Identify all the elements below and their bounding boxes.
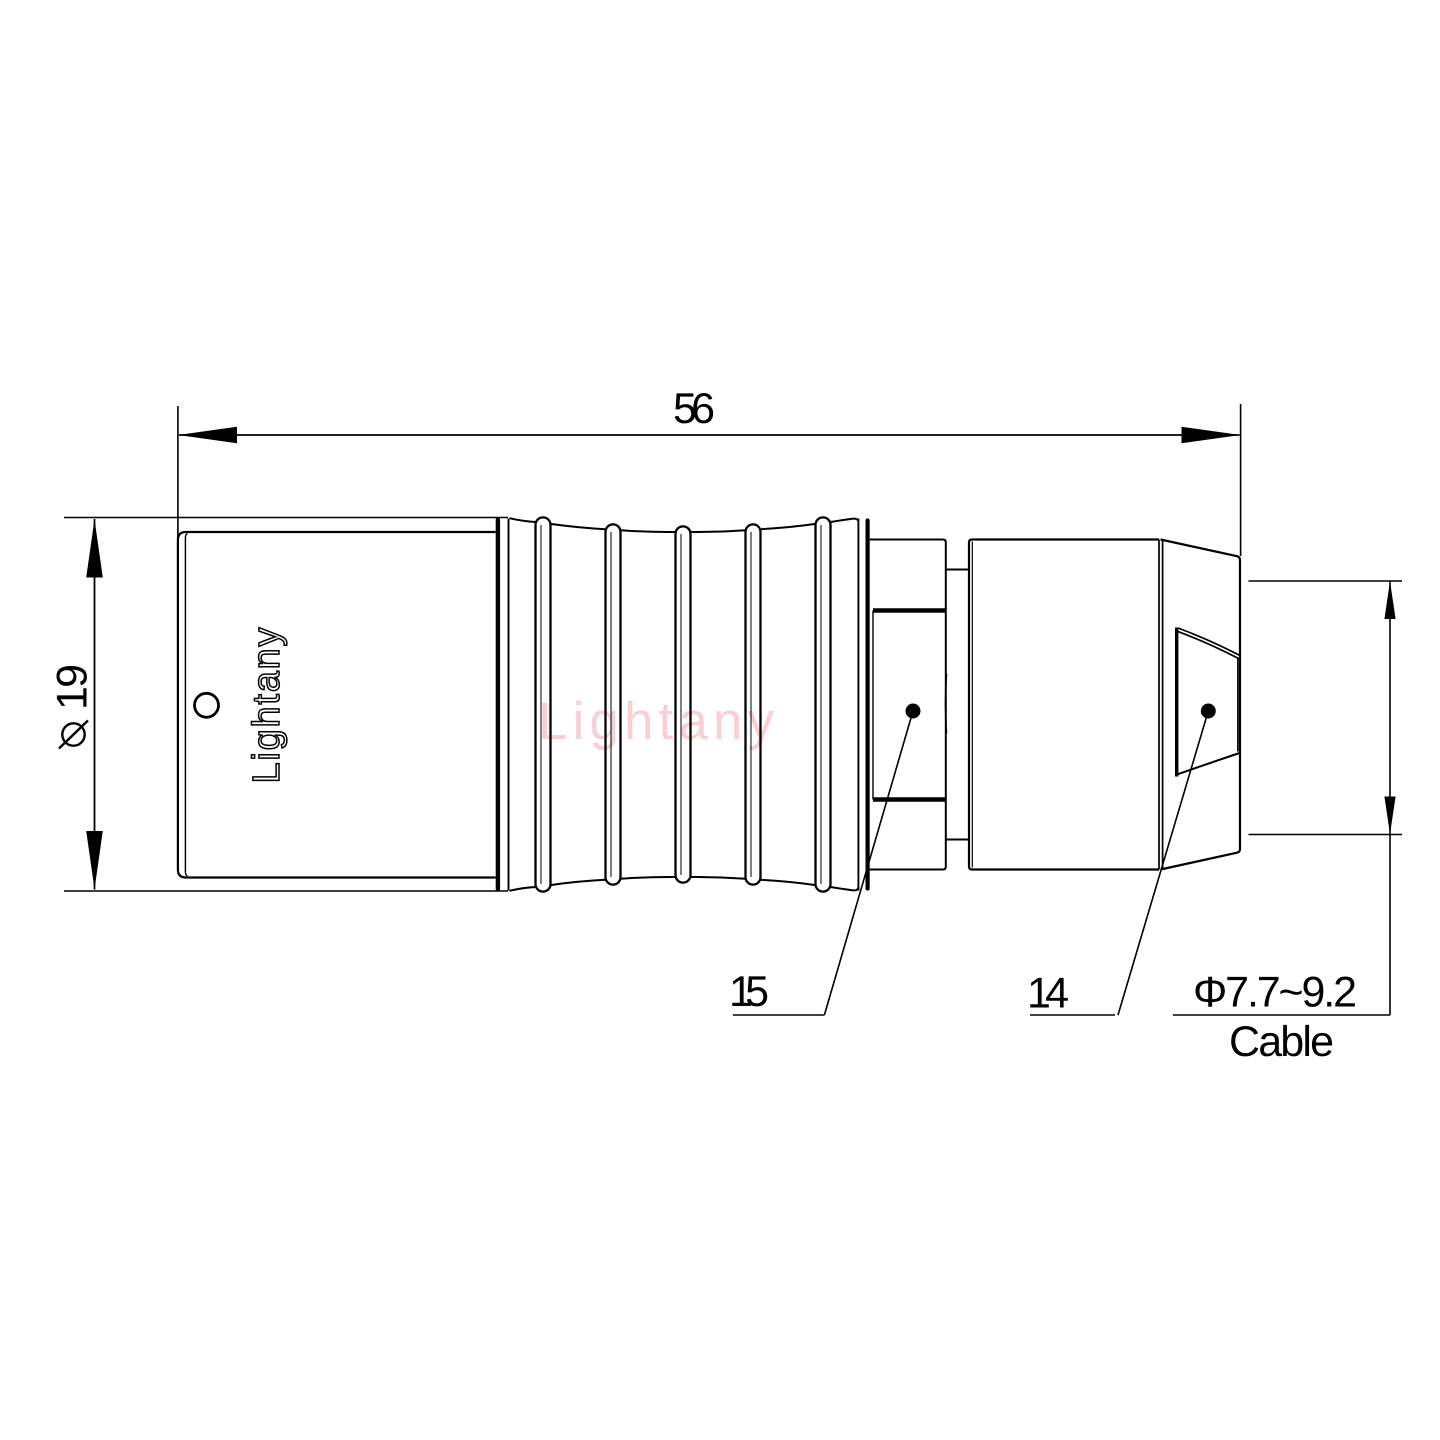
svg-text:15: 15 [729,968,769,1016]
svg-text:Φ7.7~9.2: Φ7.7~9.2 [1193,969,1357,1017]
svg-text:56: 56 [673,385,715,433]
svg-text:19: 19 [49,664,97,710]
svg-text:Lightany: Lightany [538,692,780,751]
svg-text:14: 14 [1027,970,1069,1018]
svg-text:Lightany: Lightany [246,628,288,784]
svg-text:Cable: Cable [1229,1018,1334,1066]
